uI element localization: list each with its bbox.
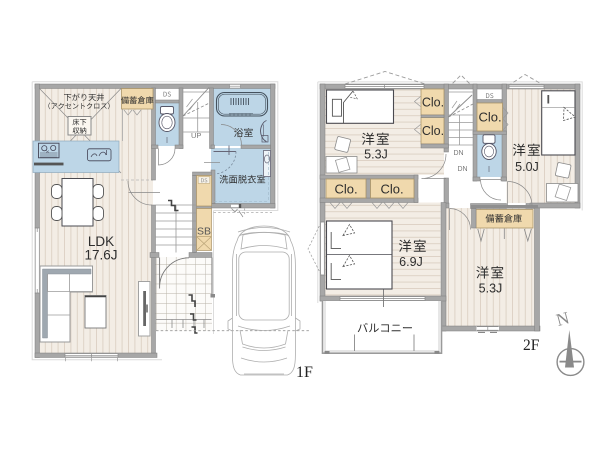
svg-text:5.3J: 5.3J: [479, 282, 503, 296]
svg-text:Clo.: Clo.: [478, 110, 501, 125]
svg-text:Clo.: Clo.: [380, 182, 403, 197]
svg-text:DN: DN: [458, 166, 468, 173]
svg-text:17.6J: 17.6J: [84, 248, 117, 263]
svg-text:UP: UP: [191, 131, 201, 140]
svg-text:6.9J: 6.9J: [399, 255, 423, 269]
svg-text:Clo.: Clo.: [422, 96, 444, 110]
svg-text:Clo.: Clo.: [422, 124, 444, 138]
svg-text:Clo.: Clo.: [334, 182, 357, 197]
svg-text:1F: 1F: [296, 364, 313, 381]
svg-text:5.3J: 5.3J: [364, 148, 388, 162]
svg-text:2F: 2F: [523, 337, 540, 354]
svg-text:SB: SB: [197, 226, 211, 238]
svg-text:5.0J: 5.0J: [515, 160, 539, 174]
svg-text:DN: DN: [454, 150, 464, 157]
